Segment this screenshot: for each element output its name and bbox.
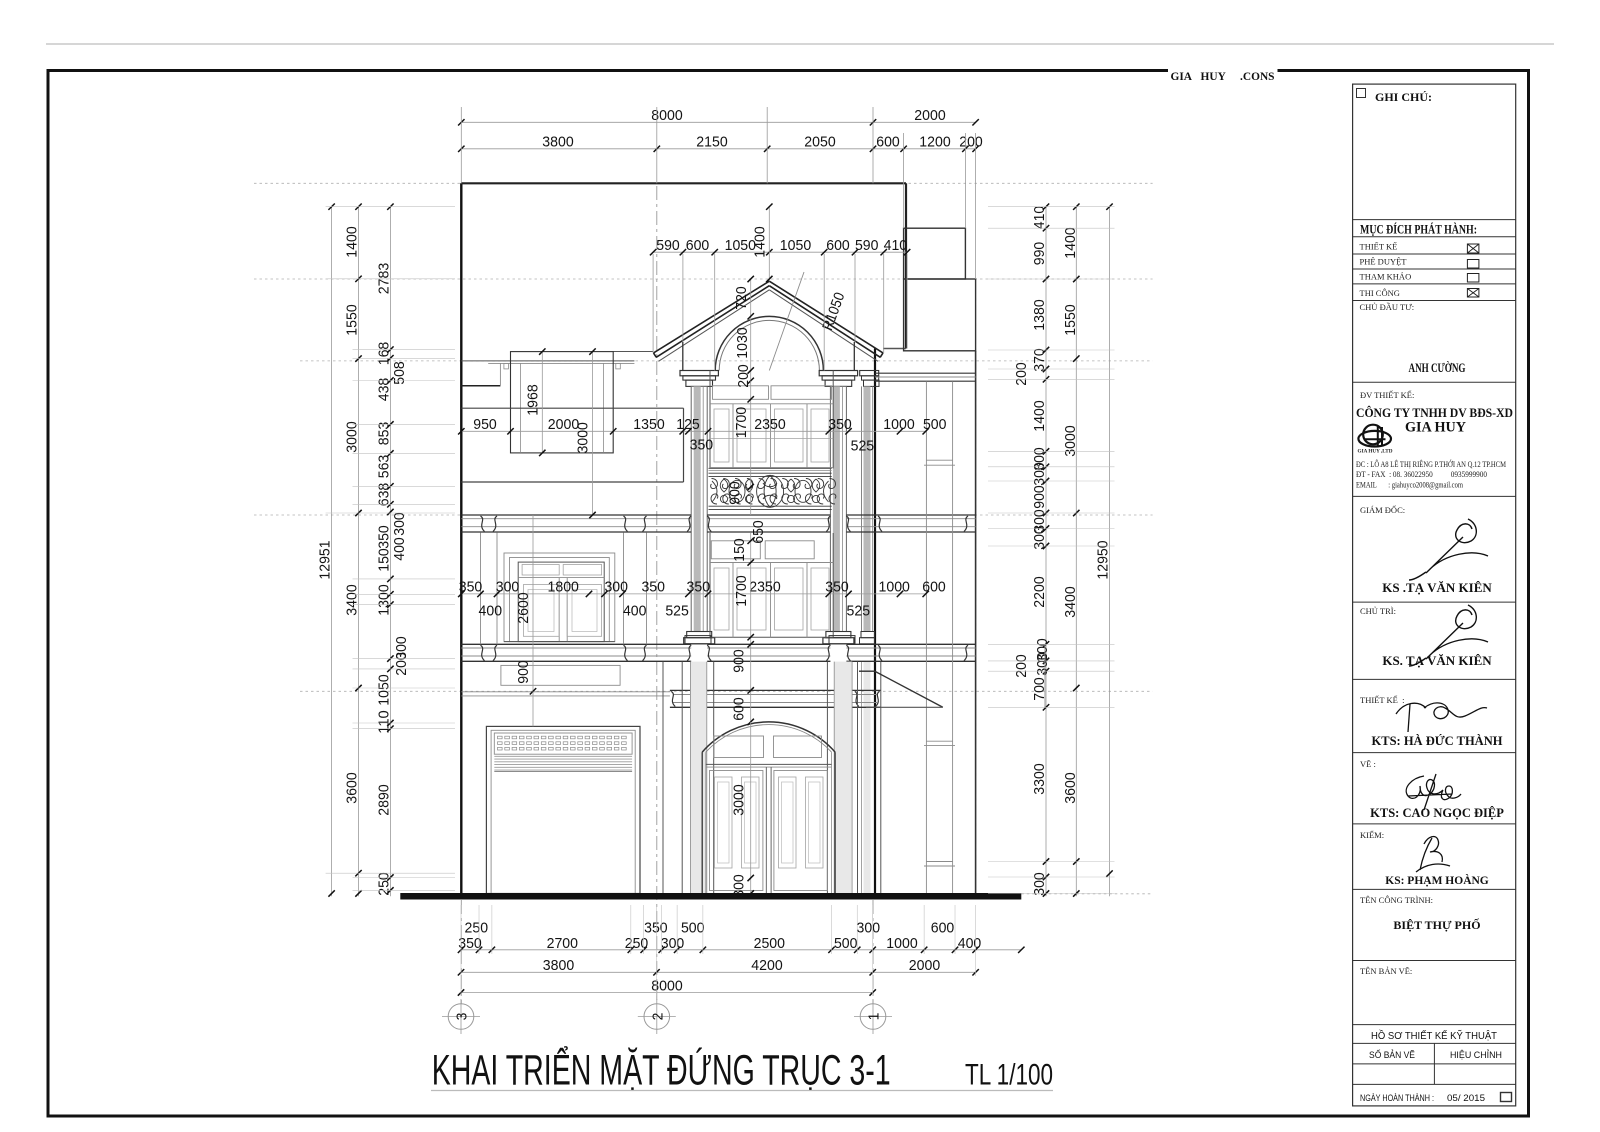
svg-text:GIA HUY: GIA HUY bbox=[1405, 420, 1466, 436]
svg-text:1050: 1050 bbox=[780, 238, 811, 254]
svg-text:950: 950 bbox=[473, 417, 497, 433]
svg-text:250: 250 bbox=[465, 921, 489, 937]
svg-text:2700: 2700 bbox=[547, 936, 578, 952]
svg-text:410: 410 bbox=[884, 238, 908, 254]
svg-text:1968: 1968 bbox=[525, 384, 541, 415]
svg-text:2000: 2000 bbox=[914, 108, 945, 124]
svg-text:250: 250 bbox=[376, 872, 392, 896]
svg-text:MỤC ĐÍCH PHÁT HÀNH:: MỤC ĐÍCH PHÁT HÀNH: bbox=[1360, 223, 1477, 237]
svg-text:NGÀY HOÀN THÀNH :: NGÀY HOÀN THÀNH : bbox=[1360, 1093, 1434, 1104]
svg-text:3400: 3400 bbox=[345, 584, 361, 615]
svg-text:HỒ SƠ THIẾT KẾ KỸ THUẬT: HỒ SƠ THIẾT KẾ KỸ THUẬT bbox=[1371, 1029, 1498, 1042]
svg-text:3000: 3000 bbox=[345, 421, 361, 452]
svg-text:VẼ :: VẼ : bbox=[1360, 759, 1376, 769]
svg-text:350: 350 bbox=[376, 525, 392, 549]
svg-text:500: 500 bbox=[923, 417, 947, 433]
svg-text:650: 650 bbox=[751, 520, 767, 544]
svg-text:TÊN BẢN VẼ:: TÊN BẢN VẼ: bbox=[1360, 966, 1412, 976]
svg-text:KHAI TRIỂN MẶT ĐỨNG TRỤC 3-1: KHAI TRIỂN MẶT ĐỨNG TRỤC 3-1 bbox=[432, 1046, 891, 1095]
svg-text:3800: 3800 bbox=[542, 135, 573, 151]
svg-text:THIẾT KẾ: THIẾT KẾ bbox=[1360, 242, 1398, 252]
svg-text:GIÁM ĐỐC:: GIÁM ĐỐC: bbox=[1360, 505, 1405, 515]
svg-text:1400: 1400 bbox=[753, 226, 769, 257]
svg-text:990: 990 bbox=[1032, 242, 1048, 266]
svg-text:PHÊ DUYỆT: PHÊ DUYỆT bbox=[1360, 257, 1408, 267]
svg-text:1800: 1800 bbox=[548, 580, 579, 596]
svg-text:853: 853 bbox=[376, 422, 392, 446]
svg-text:3000: 3000 bbox=[1063, 425, 1079, 456]
svg-text:THI CÔNG: THI CÔNG bbox=[1360, 288, 1400, 298]
svg-text:300: 300 bbox=[661, 936, 685, 952]
svg-text:600: 600 bbox=[732, 697, 748, 721]
svg-text:TÊN CÔNG TRÌNH:: TÊN CÔNG TRÌNH: bbox=[1360, 895, 1433, 905]
svg-text:2890: 2890 bbox=[376, 784, 392, 815]
svg-text:1550: 1550 bbox=[345, 304, 361, 335]
svg-text:GIA HUY ,LTD: GIA HUY ,LTD bbox=[1358, 449, 1393, 455]
svg-text:2000: 2000 bbox=[548, 417, 579, 433]
svg-text:438: 438 bbox=[376, 378, 392, 402]
svg-text:200: 200 bbox=[959, 135, 983, 151]
svg-text:110: 110 bbox=[376, 710, 392, 734]
svg-text:1200: 1200 bbox=[919, 135, 950, 151]
svg-text:350: 350 bbox=[690, 438, 714, 454]
svg-text:600: 600 bbox=[922, 580, 946, 596]
svg-text:4200: 4200 bbox=[751, 958, 782, 974]
svg-text:525: 525 bbox=[851, 439, 875, 455]
svg-text:3300: 3300 bbox=[1032, 763, 1048, 794]
svg-text:2150: 2150 bbox=[696, 135, 727, 151]
svg-text:525: 525 bbox=[847, 604, 871, 620]
svg-text:2200: 2200 bbox=[1032, 576, 1048, 607]
svg-text:600: 600 bbox=[686, 238, 710, 254]
svg-text:900: 900 bbox=[516, 660, 532, 684]
svg-text:1000: 1000 bbox=[879, 580, 910, 596]
svg-text:508: 508 bbox=[392, 361, 408, 385]
svg-text:3800: 3800 bbox=[543, 958, 574, 974]
svg-text:CÔNG TY TNHH DV BĐS-XD: CÔNG TY TNHH DV BĐS-XD bbox=[1356, 406, 1513, 420]
svg-text:ANH CƯỜNG: ANH CƯỜNG bbox=[1409, 361, 1466, 375]
svg-text:300: 300 bbox=[1032, 462, 1048, 486]
svg-text:1380: 1380 bbox=[1032, 299, 1048, 330]
svg-text:900: 900 bbox=[732, 649, 748, 673]
svg-text:CHỦ TRÌ:: CHỦ TRÌ: bbox=[1360, 606, 1396, 616]
svg-text:KIỂM:: KIỂM: bbox=[1360, 830, 1384, 840]
svg-text:EMAIL : giahuyco2008@gma: EMAIL : giahuyco2008@gmail.com bbox=[1356, 480, 1463, 490]
svg-text:300: 300 bbox=[732, 874, 748, 898]
svg-text:1400: 1400 bbox=[1063, 227, 1079, 258]
svg-text:2500: 2500 bbox=[754, 936, 785, 952]
svg-text:525: 525 bbox=[665, 604, 689, 620]
svg-text:3: 3 bbox=[455, 1013, 471, 1021]
svg-text:600: 600 bbox=[931, 921, 955, 937]
svg-text:300: 300 bbox=[392, 512, 408, 536]
svg-text:900: 900 bbox=[728, 481, 744, 505]
svg-text:590: 590 bbox=[855, 238, 879, 254]
svg-text:2350: 2350 bbox=[754, 417, 785, 433]
svg-text:GIA HUY .CONS: GIA HUY .CONS bbox=[1171, 69, 1275, 83]
svg-text:720: 720 bbox=[734, 286, 750, 310]
svg-text:ĐV THIẾT KẾ:: ĐV THIẾT KẾ: bbox=[1360, 390, 1414, 400]
svg-text:05/ 2015: 05/ 2015 bbox=[1447, 1093, 1485, 1104]
svg-text:1700: 1700 bbox=[734, 575, 750, 606]
svg-text:8000: 8000 bbox=[651, 108, 682, 124]
svg-text:ĐC : LÔ A8 LÊ THỊ RIÊNG P.THỚI: ĐC : LÔ A8 LÊ THỊ RIÊNG P.THỚI AN Q.12 T… bbox=[1356, 459, 1506, 469]
svg-text:3600: 3600 bbox=[1063, 772, 1079, 803]
svg-text:600: 600 bbox=[826, 238, 850, 254]
svg-text:200: 200 bbox=[1014, 654, 1030, 678]
svg-text:8000: 8000 bbox=[651, 978, 682, 994]
svg-text:ĐT - FAX : 08. 36022950: ĐT - FAX : 08. 36022950 0935999900 bbox=[1356, 469, 1487, 479]
svg-text:250: 250 bbox=[625, 936, 649, 952]
svg-text:1700: 1700 bbox=[734, 407, 750, 438]
svg-text:1400: 1400 bbox=[1032, 400, 1048, 431]
svg-text:300: 300 bbox=[1032, 872, 1048, 896]
svg-text:410: 410 bbox=[1032, 206, 1048, 230]
svg-text:900: 900 bbox=[1032, 485, 1048, 509]
svg-text:500: 500 bbox=[681, 921, 705, 937]
svg-text:1000: 1000 bbox=[883, 417, 914, 433]
svg-text:125: 125 bbox=[676, 417, 700, 433]
svg-text:700: 700 bbox=[1032, 677, 1048, 701]
svg-text:400: 400 bbox=[392, 537, 408, 561]
svg-text:3600: 3600 bbox=[345, 772, 361, 803]
svg-text:1550: 1550 bbox=[1063, 304, 1079, 335]
svg-text:1300: 1300 bbox=[376, 584, 392, 615]
svg-text:KS: PHẠM HOÀNG: KS: PHẠM HOÀNG bbox=[1385, 873, 1489, 887]
svg-text:300: 300 bbox=[857, 921, 881, 937]
svg-text:2600: 2600 bbox=[516, 592, 532, 623]
svg-text:350: 350 bbox=[828, 417, 852, 433]
svg-text:1050: 1050 bbox=[376, 674, 392, 705]
svg-text:1350: 1350 bbox=[633, 417, 664, 433]
svg-text:500: 500 bbox=[834, 936, 858, 952]
svg-text:168: 168 bbox=[376, 342, 392, 366]
svg-text:1050: 1050 bbox=[725, 238, 756, 254]
svg-text:350: 350 bbox=[458, 936, 482, 952]
svg-text:3000: 3000 bbox=[576, 422, 592, 453]
svg-text:2050: 2050 bbox=[804, 135, 835, 151]
svg-text:HIỆU CHỈNH: HIỆU CHỈNH bbox=[1450, 1049, 1502, 1061]
svg-text:590: 590 bbox=[656, 238, 680, 254]
svg-text:THIẾT KẾ :: THIẾT KẾ : bbox=[1360, 695, 1404, 705]
svg-text:3000: 3000 bbox=[732, 784, 748, 815]
svg-text:KTS: HÀ ĐỨC THÀNH: KTS: HÀ ĐỨC THÀNH bbox=[1372, 734, 1503, 748]
svg-text:200: 200 bbox=[1014, 362, 1030, 386]
svg-text:350: 350 bbox=[644, 921, 668, 937]
svg-text:350: 350 bbox=[825, 580, 849, 596]
svg-text:KS .TẠ VĂN KIÊN: KS .TẠ VĂN KIÊN bbox=[1382, 580, 1492, 595]
svg-text:300: 300 bbox=[604, 580, 628, 596]
svg-text:KS. TẠ VĂN KIÊN: KS. TẠ VĂN KIÊN bbox=[1382, 653, 1492, 668]
svg-text:1: 1 bbox=[867, 1013, 883, 1021]
svg-text:350: 350 bbox=[641, 580, 665, 596]
svg-text:TL 1/100: TL 1/100 bbox=[965, 1059, 1053, 1092]
svg-text:2350: 2350 bbox=[749, 580, 780, 596]
svg-text:THAM KHẢO: THAM KHẢO bbox=[1360, 271, 1412, 281]
svg-text:300: 300 bbox=[1035, 652, 1051, 676]
svg-text:150: 150 bbox=[376, 548, 392, 572]
svg-text:150: 150 bbox=[732, 538, 748, 562]
svg-text:1030: 1030 bbox=[735, 327, 751, 358]
svg-text:400: 400 bbox=[623, 604, 647, 620]
svg-text:1000: 1000 bbox=[886, 936, 917, 952]
svg-text:563: 563 bbox=[376, 455, 392, 479]
svg-text:400: 400 bbox=[958, 936, 982, 952]
svg-text:370: 370 bbox=[1032, 348, 1048, 372]
svg-text:2: 2 bbox=[650, 1013, 666, 1021]
svg-text:KTS: CAO NGỌC ĐIỆP: KTS: CAO NGỌC ĐIỆP bbox=[1370, 806, 1504, 820]
svg-text:350: 350 bbox=[687, 580, 711, 596]
svg-text:BIỆT THỰ PHỐ: BIỆT THỰ PHỐ bbox=[1393, 917, 1480, 932]
svg-text:12951: 12951 bbox=[318, 540, 334, 579]
svg-text:2000: 2000 bbox=[909, 958, 940, 974]
svg-text:3400: 3400 bbox=[1063, 586, 1079, 617]
svg-text:200: 200 bbox=[736, 364, 752, 388]
svg-text:350: 350 bbox=[459, 580, 483, 596]
svg-text:600: 600 bbox=[876, 135, 900, 151]
svg-text:GHI CHÚ:: GHI CHÚ: bbox=[1375, 90, 1432, 104]
svg-text:SỐ BẢN VẼ: SỐ BẢN VẼ bbox=[1369, 1049, 1415, 1061]
svg-text:400: 400 bbox=[479, 604, 503, 620]
svg-text:1400: 1400 bbox=[345, 226, 361, 257]
svg-text:CHỦ ĐẦU TƯ:: CHỦ ĐẦU TƯ: bbox=[1360, 302, 1415, 312]
svg-text:200: 200 bbox=[394, 652, 410, 676]
